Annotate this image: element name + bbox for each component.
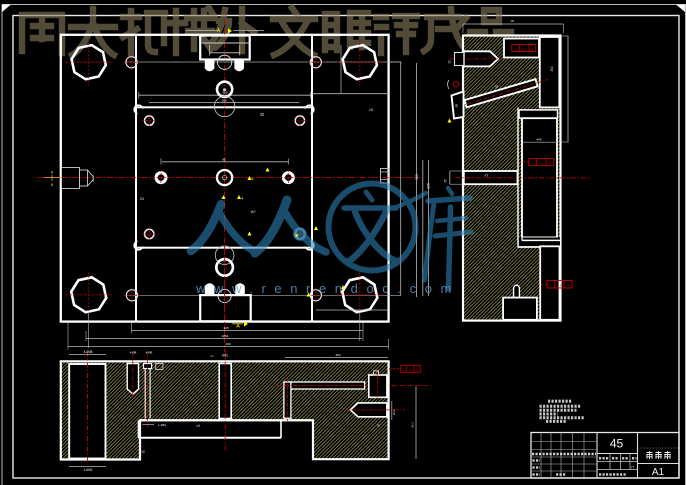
svg-text:18: 18	[141, 450, 145, 454]
svg-text:35: 35	[444, 179, 448, 183]
svg-text:L-38A: L-38A	[158, 423, 166, 427]
svg-text:254: 254	[335, 353, 340, 357]
svg-text:55: 55	[377, 424, 381, 428]
svg-text:300: 300	[222, 91, 227, 95]
svg-text:12: 12	[448, 60, 452, 64]
svg-text:4-Ø48: 4-Ø48	[84, 350, 93, 354]
svg-text:325: 325	[223, 326, 228, 330]
svg-text:262: 262	[550, 66, 554, 72]
svg-text:2x: 2x	[210, 354, 214, 358]
svg-text:45: 45	[610, 437, 624, 451]
svg-text:0.1: 0.1	[539, 161, 544, 165]
svg-text:.05: .05	[408, 368, 413, 372]
svg-text:Ø12: Ø12	[392, 409, 396, 415]
svg-text:18: 18	[369, 107, 374, 112]
svg-text:4: 4	[242, 197, 244, 201]
svg-text:/B: /B	[259, 112, 264, 117]
svg-text:325: 325	[427, 183, 431, 189]
svg-text:0.1: 0.1	[557, 284, 562, 288]
svg-text:A1: A1	[652, 467, 665, 478]
svg-text:65.2: 65.2	[411, 422, 415, 428]
svg-text:www.renrendoc.com: www.renrendoc.com	[195, 281, 460, 296]
svg-text:18: 18	[510, 19, 514, 23]
svg-text:85: 85	[222, 157, 226, 161]
svg-text:1-Ø42: 1-Ø42	[84, 468, 93, 472]
svg-text:8: 8	[252, 177, 254, 181]
svg-text:6: 6	[51, 183, 53, 187]
svg-text:430: 430	[225, 342, 230, 346]
svg-text:4-Ø6: 4-Ø6	[146, 351, 153, 355]
svg-text:4-Ø8: 4-Ø8	[130, 351, 137, 355]
svg-text:285: 285	[415, 174, 419, 180]
svg-text:Ø11: Ø11	[222, 354, 228, 358]
svg-text:268: 268	[221, 99, 226, 103]
svg-text:445: 445	[536, 138, 541, 142]
svg-text:0.1: 0.1	[522, 47, 527, 51]
svg-text:8: 8	[51, 171, 53, 175]
svg-text:77: 77	[631, 465, 635, 469]
svg-text:1864: 1864	[222, 334, 229, 338]
